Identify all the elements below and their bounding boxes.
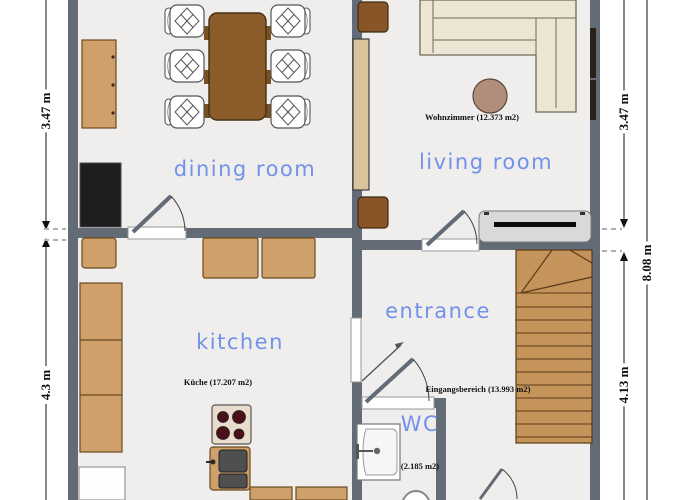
floor-plan: dining room living room kitchen entrance… bbox=[0, 0, 700, 500]
chair bbox=[165, 96, 204, 128]
wall-kitchen-entrance-a bbox=[352, 238, 362, 318]
kitchen-area-label: Küche (17.207 m2) bbox=[184, 377, 252, 387]
living-room-area-label: Wohnzimmer (12.373 m2) bbox=[425, 112, 519, 122]
dim-left-top: 3.47 m bbox=[38, 90, 54, 133]
living-room-label: living room bbox=[419, 150, 553, 174]
chair bbox=[165, 50, 204, 82]
dining-sideboard bbox=[82, 40, 116, 128]
wall-decor-strips bbox=[590, 28, 596, 120]
floor-plan-canvas bbox=[0, 0, 700, 500]
dining-table-set bbox=[165, 5, 310, 128]
dining-black-cabinet bbox=[80, 163, 121, 227]
chair bbox=[271, 50, 310, 82]
coffee-table bbox=[473, 79, 507, 113]
tv bbox=[494, 222, 576, 227]
dining-table bbox=[209, 13, 266, 120]
entrance-label: entrance bbox=[385, 299, 491, 323]
dim-right-bottom: 4.13 m bbox=[616, 364, 632, 407]
dim-left-bottom: 4.3 m bbox=[38, 367, 54, 403]
wall-dining-kitchen-b bbox=[185, 228, 352, 238]
staircase bbox=[516, 250, 592, 443]
chair bbox=[271, 5, 310, 37]
chair bbox=[165, 5, 204, 37]
wall-living-entrance-a bbox=[352, 240, 423, 250]
kitchen-sink-cabinet bbox=[206, 447, 250, 490]
dim-right-top: 3.47 m bbox=[616, 91, 632, 134]
tv-board bbox=[479, 211, 591, 242]
kitchen-appliance-white bbox=[79, 467, 125, 500]
wc-area-label: (2.185 m2) bbox=[401, 461, 439, 471]
kitchen-label: kitchen bbox=[196, 330, 284, 354]
dining-room-label: dining room bbox=[174, 157, 316, 181]
stove bbox=[212, 405, 251, 444]
wc-label: WC bbox=[401, 412, 439, 436]
entrance-area-label: Eingangsbereich (13.993 m2) bbox=[426, 384, 531, 394]
wall-dining-kitchen-a bbox=[68, 228, 129, 238]
wc-sink bbox=[356, 424, 400, 480]
chair bbox=[271, 96, 310, 128]
wall-left bbox=[68, 0, 78, 500]
dim-right-total: 8.08 m bbox=[639, 242, 655, 285]
